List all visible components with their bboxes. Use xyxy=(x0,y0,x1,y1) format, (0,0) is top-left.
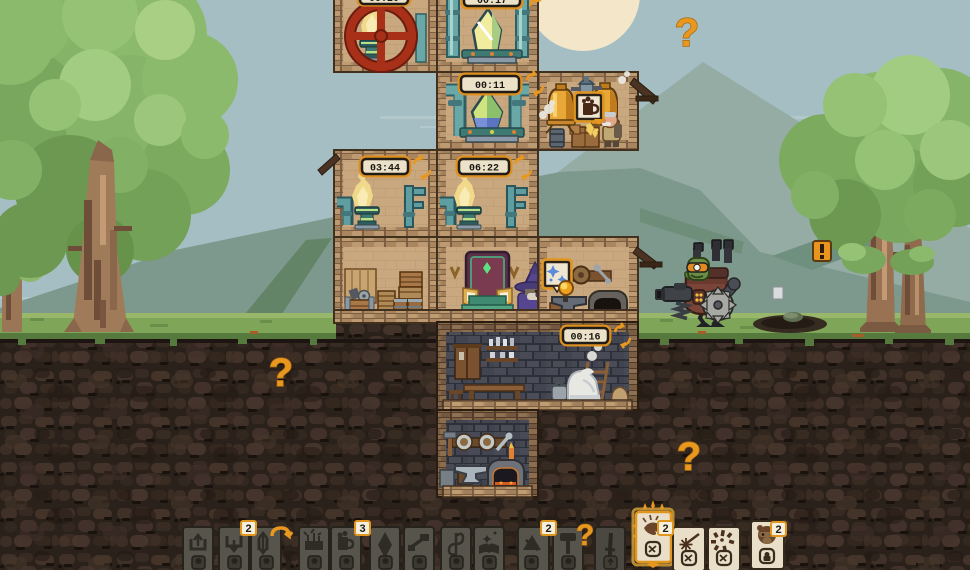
svg-text:?: ? xyxy=(576,519,594,552)
svg-text:00:11: 00:11 xyxy=(475,81,505,92)
svg-text:06:22: 06:22 xyxy=(469,164,499,175)
svg-text:00:17: 00:17 xyxy=(477,0,507,7)
svg-text:2: 2 xyxy=(775,524,781,536)
svg-text:00:20: 00:20 xyxy=(369,0,399,5)
svg-text:2: 2 xyxy=(662,523,668,535)
svg-text:3: 3 xyxy=(359,523,365,535)
svg-text:2: 2 xyxy=(245,523,251,535)
svg-text:03:44: 03:44 xyxy=(370,164,400,175)
svg-text:?: ? xyxy=(269,351,293,395)
svg-text:00:16: 00:16 xyxy=(570,333,600,344)
svg-text:?: ? xyxy=(675,11,699,55)
svg-text:2: 2 xyxy=(545,523,551,535)
svg-text:?: ? xyxy=(677,435,701,479)
